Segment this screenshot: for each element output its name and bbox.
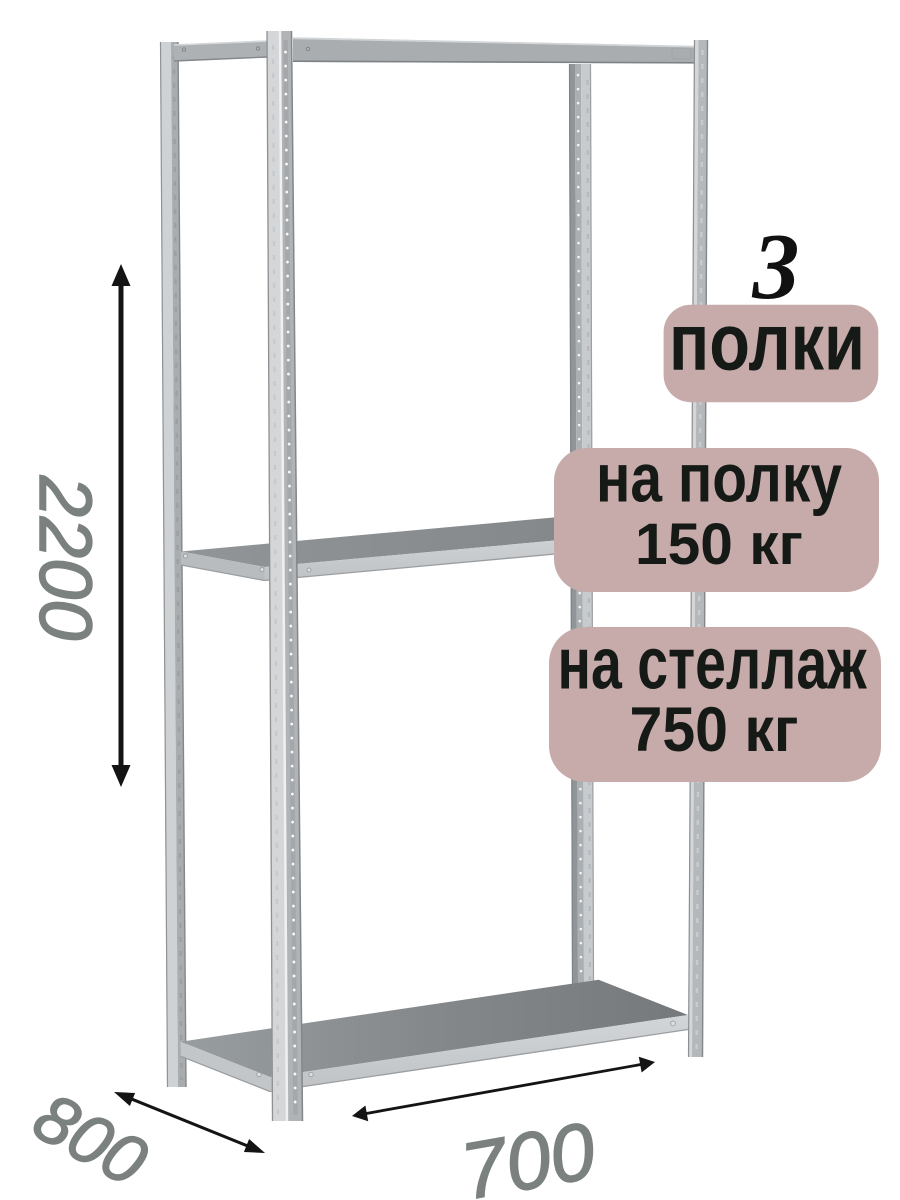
svg-text:750 кг: 750 кг <box>630 695 799 765</box>
svg-text:150 кг: 150 кг <box>635 512 803 577</box>
svg-text:полки: полки <box>669 298 865 388</box>
svg-text:2200: 2200 <box>24 475 107 641</box>
svg-text:на стеллаж: на стеллаж <box>558 624 868 705</box>
svg-text:на полку: на полку <box>596 440 842 517</box>
